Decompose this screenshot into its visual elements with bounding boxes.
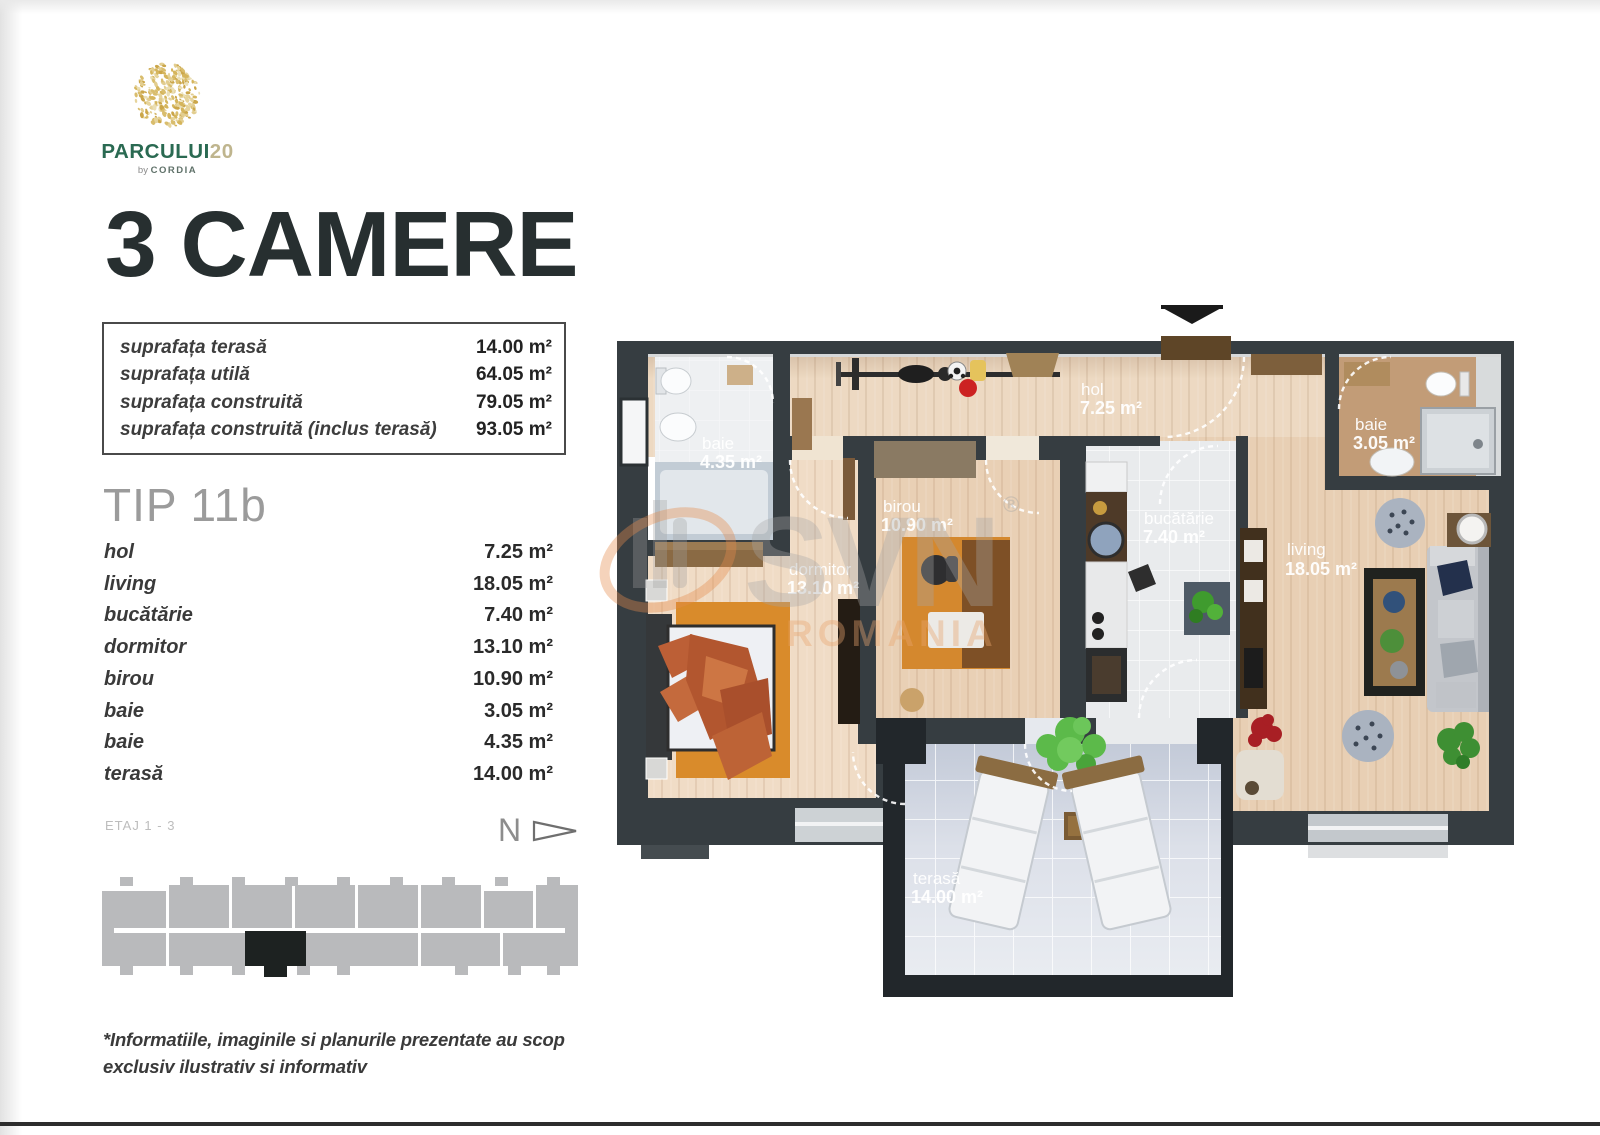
svg-text:4.35 m²: 4.35 m² — [700, 452, 762, 472]
svg-text:bucătărie: bucătărie — [1144, 509, 1214, 528]
svg-text:hol: hol — [1081, 380, 1104, 399]
svg-text:baie: baie — [1355, 415, 1387, 434]
svg-text:ROMANIA: ROMANIA — [786, 613, 998, 654]
svg-text:18.05 m²: 18.05 m² — [1285, 559, 1357, 579]
svg-text:®: ® — [1003, 492, 1019, 517]
svg-text:baie: baie — [702, 434, 734, 453]
svg-text:7.40 m²: 7.40 m² — [1143, 527, 1205, 547]
svg-text:7.25 m²: 7.25 m² — [1080, 398, 1142, 418]
svg-text:terasă: terasă — [913, 869, 961, 888]
svg-text:living: living — [1287, 540, 1326, 559]
svg-text:3.05 m²: 3.05 m² — [1353, 433, 1415, 453]
svg-text:14.00 m²: 14.00 m² — [911, 887, 983, 907]
